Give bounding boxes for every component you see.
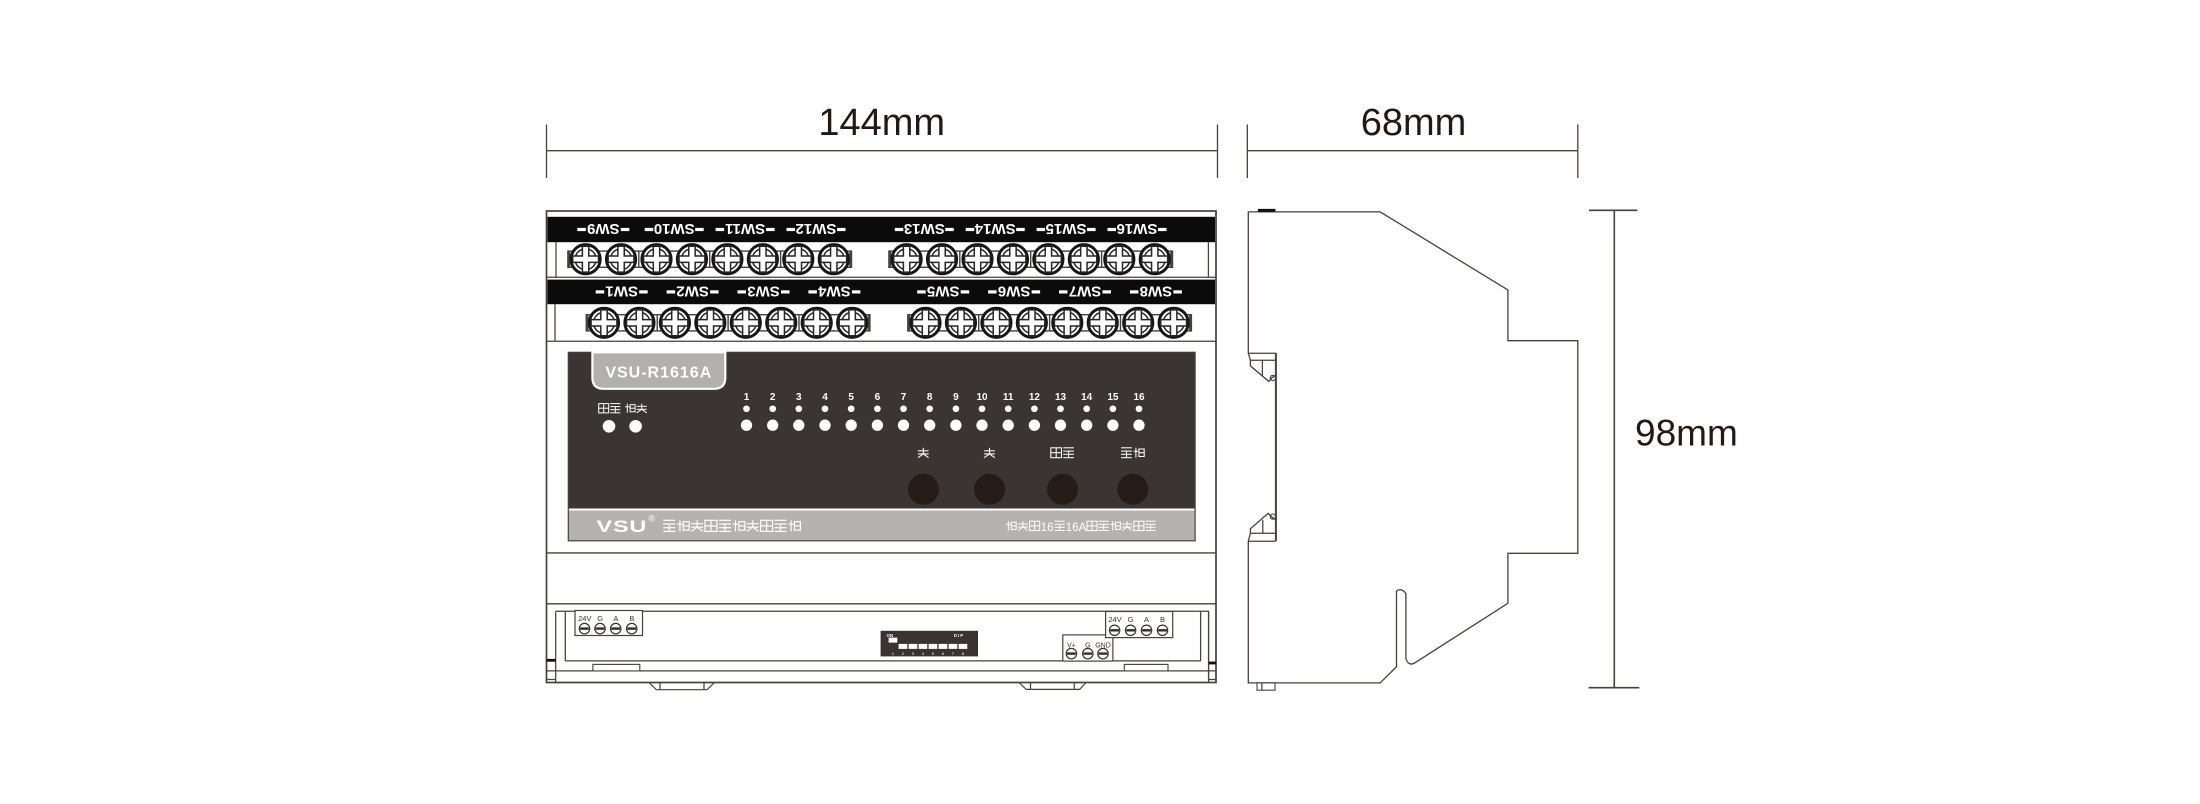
svg-text:B: B — [629, 614, 634, 623]
svg-text:ON: ON — [887, 633, 893, 638]
svg-text:6: 6 — [875, 392, 881, 403]
svg-text:SW8: SW8 — [1140, 282, 1173, 299]
svg-text:24V: 24V — [578, 614, 591, 623]
svg-text:144mm: 144mm — [818, 102, 945, 144]
svg-text:VSU-R1616A: VSU-R1616A — [605, 365, 712, 382]
svg-text:SW13: SW13 — [904, 220, 945, 237]
svg-text:16: 16 — [1133, 392, 1145, 403]
svg-text:9: 9 — [953, 392, 959, 403]
svg-text:A: A — [1144, 615, 1149, 624]
svg-text:16: 16 — [1041, 521, 1054, 534]
svg-text:13: 13 — [1055, 392, 1067, 403]
svg-text:SW7: SW7 — [1069, 282, 1102, 299]
svg-text:SW2: SW2 — [676, 282, 709, 299]
svg-text:A: A — [613, 614, 618, 623]
svg-text:15: 15 — [1107, 392, 1119, 403]
svg-text:B: B — [1160, 615, 1165, 624]
svg-text:68mm: 68mm — [1361, 102, 1467, 144]
svg-text:SW16: SW16 — [1117, 220, 1158, 237]
svg-text:3: 3 — [796, 392, 802, 403]
svg-text:SW1: SW1 — [605, 282, 638, 299]
svg-text:16A: 16A — [1066, 521, 1087, 534]
svg-text:7: 7 — [901, 392, 907, 403]
svg-text:SW3: SW3 — [747, 282, 780, 299]
svg-text:®: ® — [649, 514, 656, 524]
svg-text:SW5: SW5 — [927, 282, 960, 299]
svg-text:24V: 24V — [1108, 615, 1121, 624]
svg-text:4: 4 — [822, 392, 828, 403]
svg-text:SW10: SW10 — [654, 220, 695, 237]
svg-text:G: G — [597, 614, 603, 623]
svg-text:SW15: SW15 — [1046, 220, 1087, 237]
svg-text:10: 10 — [976, 392, 988, 403]
svg-text:SW4: SW4 — [817, 282, 850, 299]
svg-text:2: 2 — [770, 392, 776, 403]
svg-text:SW11: SW11 — [725, 220, 765, 237]
svg-text:SW14: SW14 — [974, 220, 1016, 237]
svg-text:SW6: SW6 — [998, 282, 1031, 299]
svg-text:VSU: VSU — [597, 517, 648, 536]
svg-text:11: 11 — [1003, 392, 1014, 403]
svg-text:5: 5 — [848, 392, 854, 403]
svg-text:SW12: SW12 — [796, 220, 837, 237]
svg-text:1: 1 — [744, 392, 750, 403]
svg-text:12: 12 — [1029, 392, 1041, 403]
svg-text:G: G — [1128, 615, 1134, 624]
svg-text:8: 8 — [927, 392, 933, 403]
svg-text:98mm: 98mm — [1635, 413, 1738, 454]
svg-text:SW9: SW9 — [587, 220, 620, 237]
svg-text:DIP: DIP — [954, 633, 964, 638]
svg-text:14: 14 — [1081, 392, 1093, 403]
